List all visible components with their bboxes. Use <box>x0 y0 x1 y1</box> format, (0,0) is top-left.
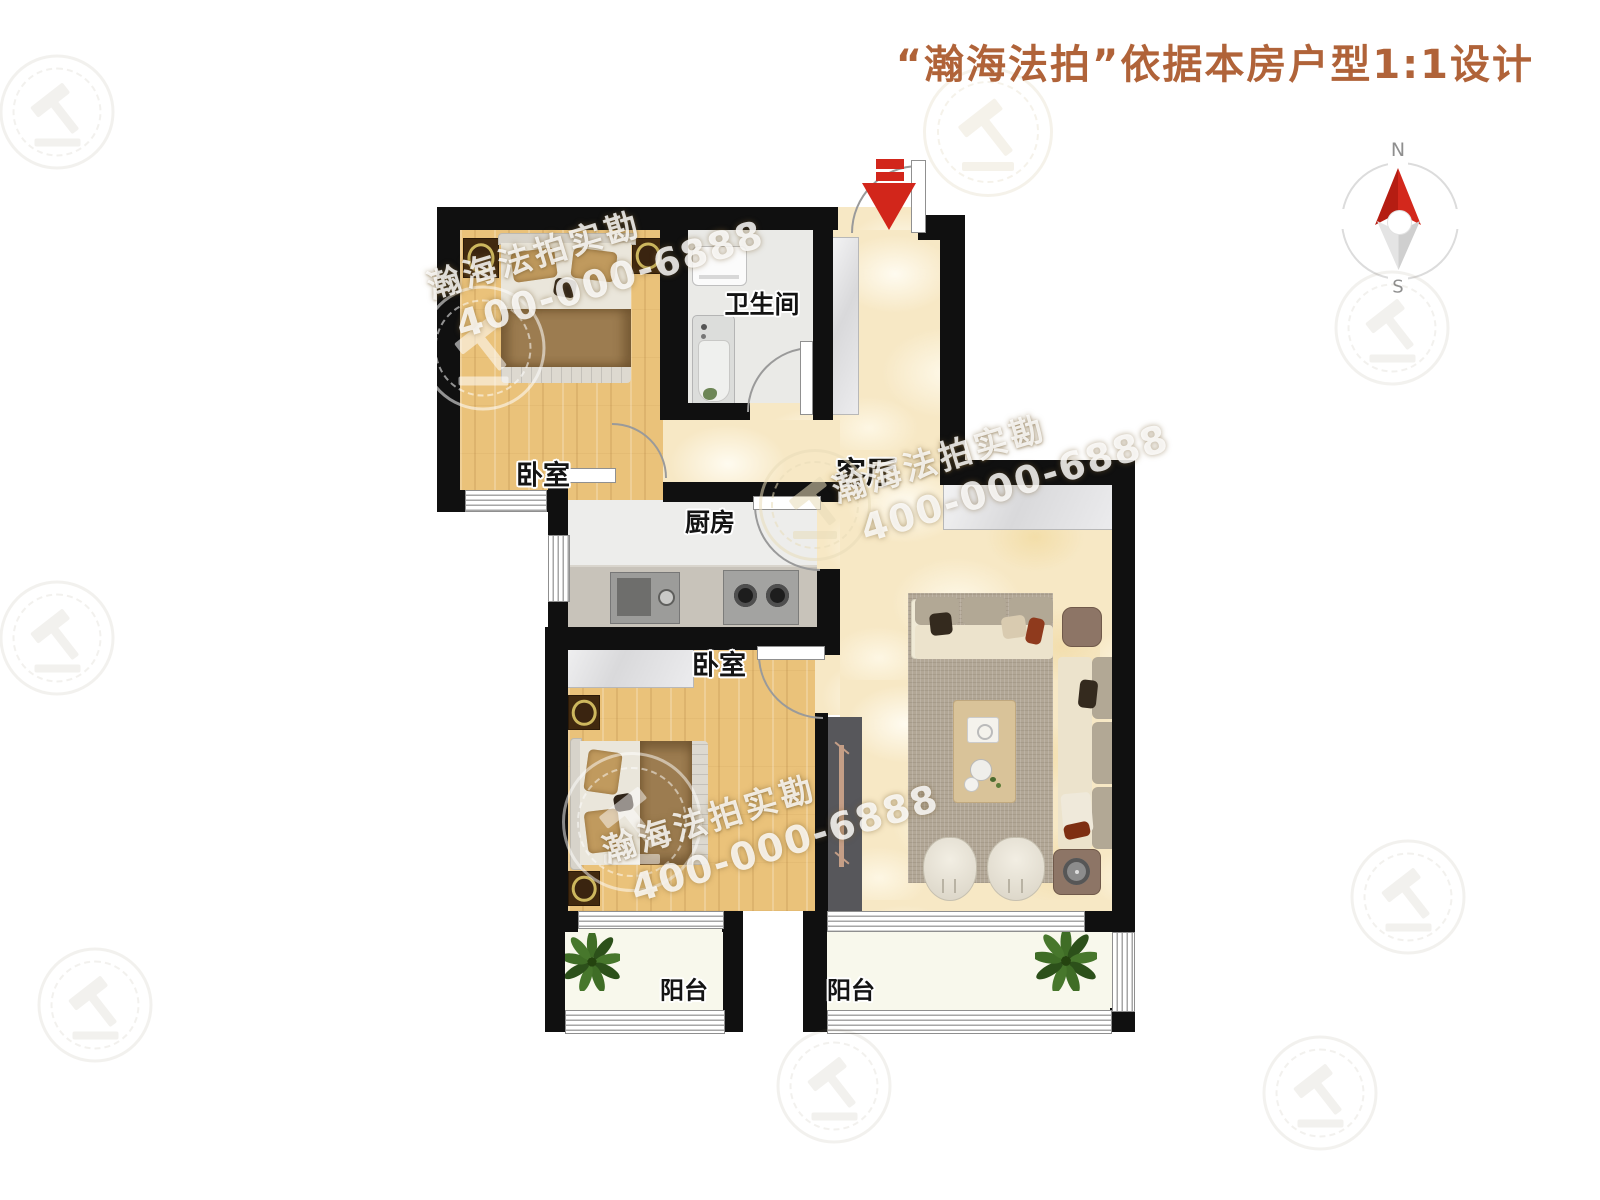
bed-foot-throw <box>501 367 631 383</box>
window <box>578 911 724 929</box>
armchair-pouf <box>987 837 1045 901</box>
nightstand <box>568 695 600 730</box>
kitchen-door-leaf <box>753 496 821 510</box>
compass-south-label: S <box>1392 277 1403 298</box>
washing-machine <box>692 246 747 286</box>
tv-cabinet <box>828 717 862 913</box>
entry-shoe-cabinet <box>831 237 859 415</box>
floor-plan-page: “瀚海法拍”依据本房户型1:1设计 <box>0 0 1600 1200</box>
corridor-floor <box>663 420 840 482</box>
sofa-pillow <box>929 612 953 636</box>
bathroom-door-leaf <box>800 341 813 415</box>
stove-burner <box>766 584 789 607</box>
bed-pillow <box>584 808 623 854</box>
wall-segment <box>545 911 565 1032</box>
stove-burner <box>734 584 757 607</box>
bedroom2-door-leaf <box>757 646 825 660</box>
speaker-dot <box>1075 870 1079 874</box>
washing-machine-detail <box>699 275 739 279</box>
tv-screen <box>839 745 844 867</box>
room-label-balcony-left: 阳台 <box>660 971 708 1006</box>
plant <box>564 933 620 991</box>
window <box>827 1010 1112 1034</box>
sofa-cushion <box>962 597 1006 625</box>
table-tray <box>967 717 999 743</box>
coffee-table <box>953 700 1016 803</box>
compass-ring-gap <box>1337 209 1347 229</box>
bathtub <box>692 315 735 408</box>
wall-segment <box>548 486 568 535</box>
tray-bowl <box>977 724 993 740</box>
stove <box>723 570 799 625</box>
background-logo-watermark <box>38 948 153 1063</box>
bed-accent-pillow <box>553 277 578 299</box>
window <box>465 490 547 512</box>
wall-segment <box>815 713 828 911</box>
bed-pillow <box>583 749 623 795</box>
background-logo-watermark <box>777 1029 892 1144</box>
wall-segment <box>940 215 965 465</box>
bathtub-control <box>701 334 706 339</box>
window <box>548 535 570 602</box>
page-title: “瀚海法拍”依据本房户型1:1设计 <box>896 32 1534 90</box>
background-logo-watermark <box>1351 840 1466 955</box>
bed <box>570 738 712 868</box>
sink-bowl <box>658 589 675 606</box>
bed-blanket <box>501 309 631 367</box>
wall-segment <box>1112 460 1135 932</box>
background-logo-watermark <box>0 581 115 696</box>
kitchen-door-threshold <box>817 500 840 572</box>
room-label-kitchen: 厨房 <box>685 503 735 539</box>
window <box>1112 932 1135 1012</box>
compass-hub <box>1387 210 1412 235</box>
compass-ring-gap <box>1449 209 1459 229</box>
wall-segment <box>1083 911 1118 932</box>
window <box>827 911 1085 932</box>
room-label-bathroom: 卫生间 <box>724 285 799 321</box>
bed-blanket <box>640 741 692 865</box>
side-table <box>1062 607 1102 647</box>
wall-segment <box>437 207 460 512</box>
armchair-pouf <box>923 837 977 901</box>
nightstand <box>568 871 600 906</box>
sideboard <box>943 482 1117 530</box>
wall-segment <box>545 627 568 911</box>
room-label-balcony-right: 阳台 <box>827 971 875 1006</box>
bed-accent-pillow <box>613 792 635 812</box>
wall-segment <box>940 460 1135 485</box>
bathtub-control <box>701 324 707 330</box>
plant <box>1035 931 1097 991</box>
compass-north-label: N <box>1391 139 1405 161</box>
sink-basin <box>617 578 651 616</box>
wall-segment <box>803 911 827 1032</box>
table-greens <box>990 777 996 782</box>
sofa-pillow <box>1001 614 1028 639</box>
bed-pillow <box>510 247 558 283</box>
sofa-pillow <box>1078 679 1099 709</box>
table-greens <box>996 783 1001 788</box>
room-label-living: 客厅 <box>836 448 896 492</box>
background-logo-watermark <box>0 55 115 170</box>
wall-segment <box>813 207 833 420</box>
bed <box>498 233 634 385</box>
bed-foot-throw <box>692 741 708 865</box>
kitchen-sink-unit <box>610 572 680 624</box>
nightstand <box>463 238 499 278</box>
table-plate <box>964 777 979 792</box>
wall-segment <box>437 207 838 230</box>
wall-segment <box>660 228 688 418</box>
side-table <box>1053 849 1101 895</box>
entry-direction-arrow <box>861 158 917 232</box>
window <box>565 1010 725 1034</box>
wall-segment <box>723 911 743 1032</box>
wall-segment <box>660 403 750 420</box>
bed-pillow <box>570 247 617 282</box>
background-logo-watermark <box>1263 1036 1378 1151</box>
room-label-bedroom1: 卧室 <box>516 454 570 493</box>
room-label-bedroom2: 卧室 <box>692 644 746 683</box>
